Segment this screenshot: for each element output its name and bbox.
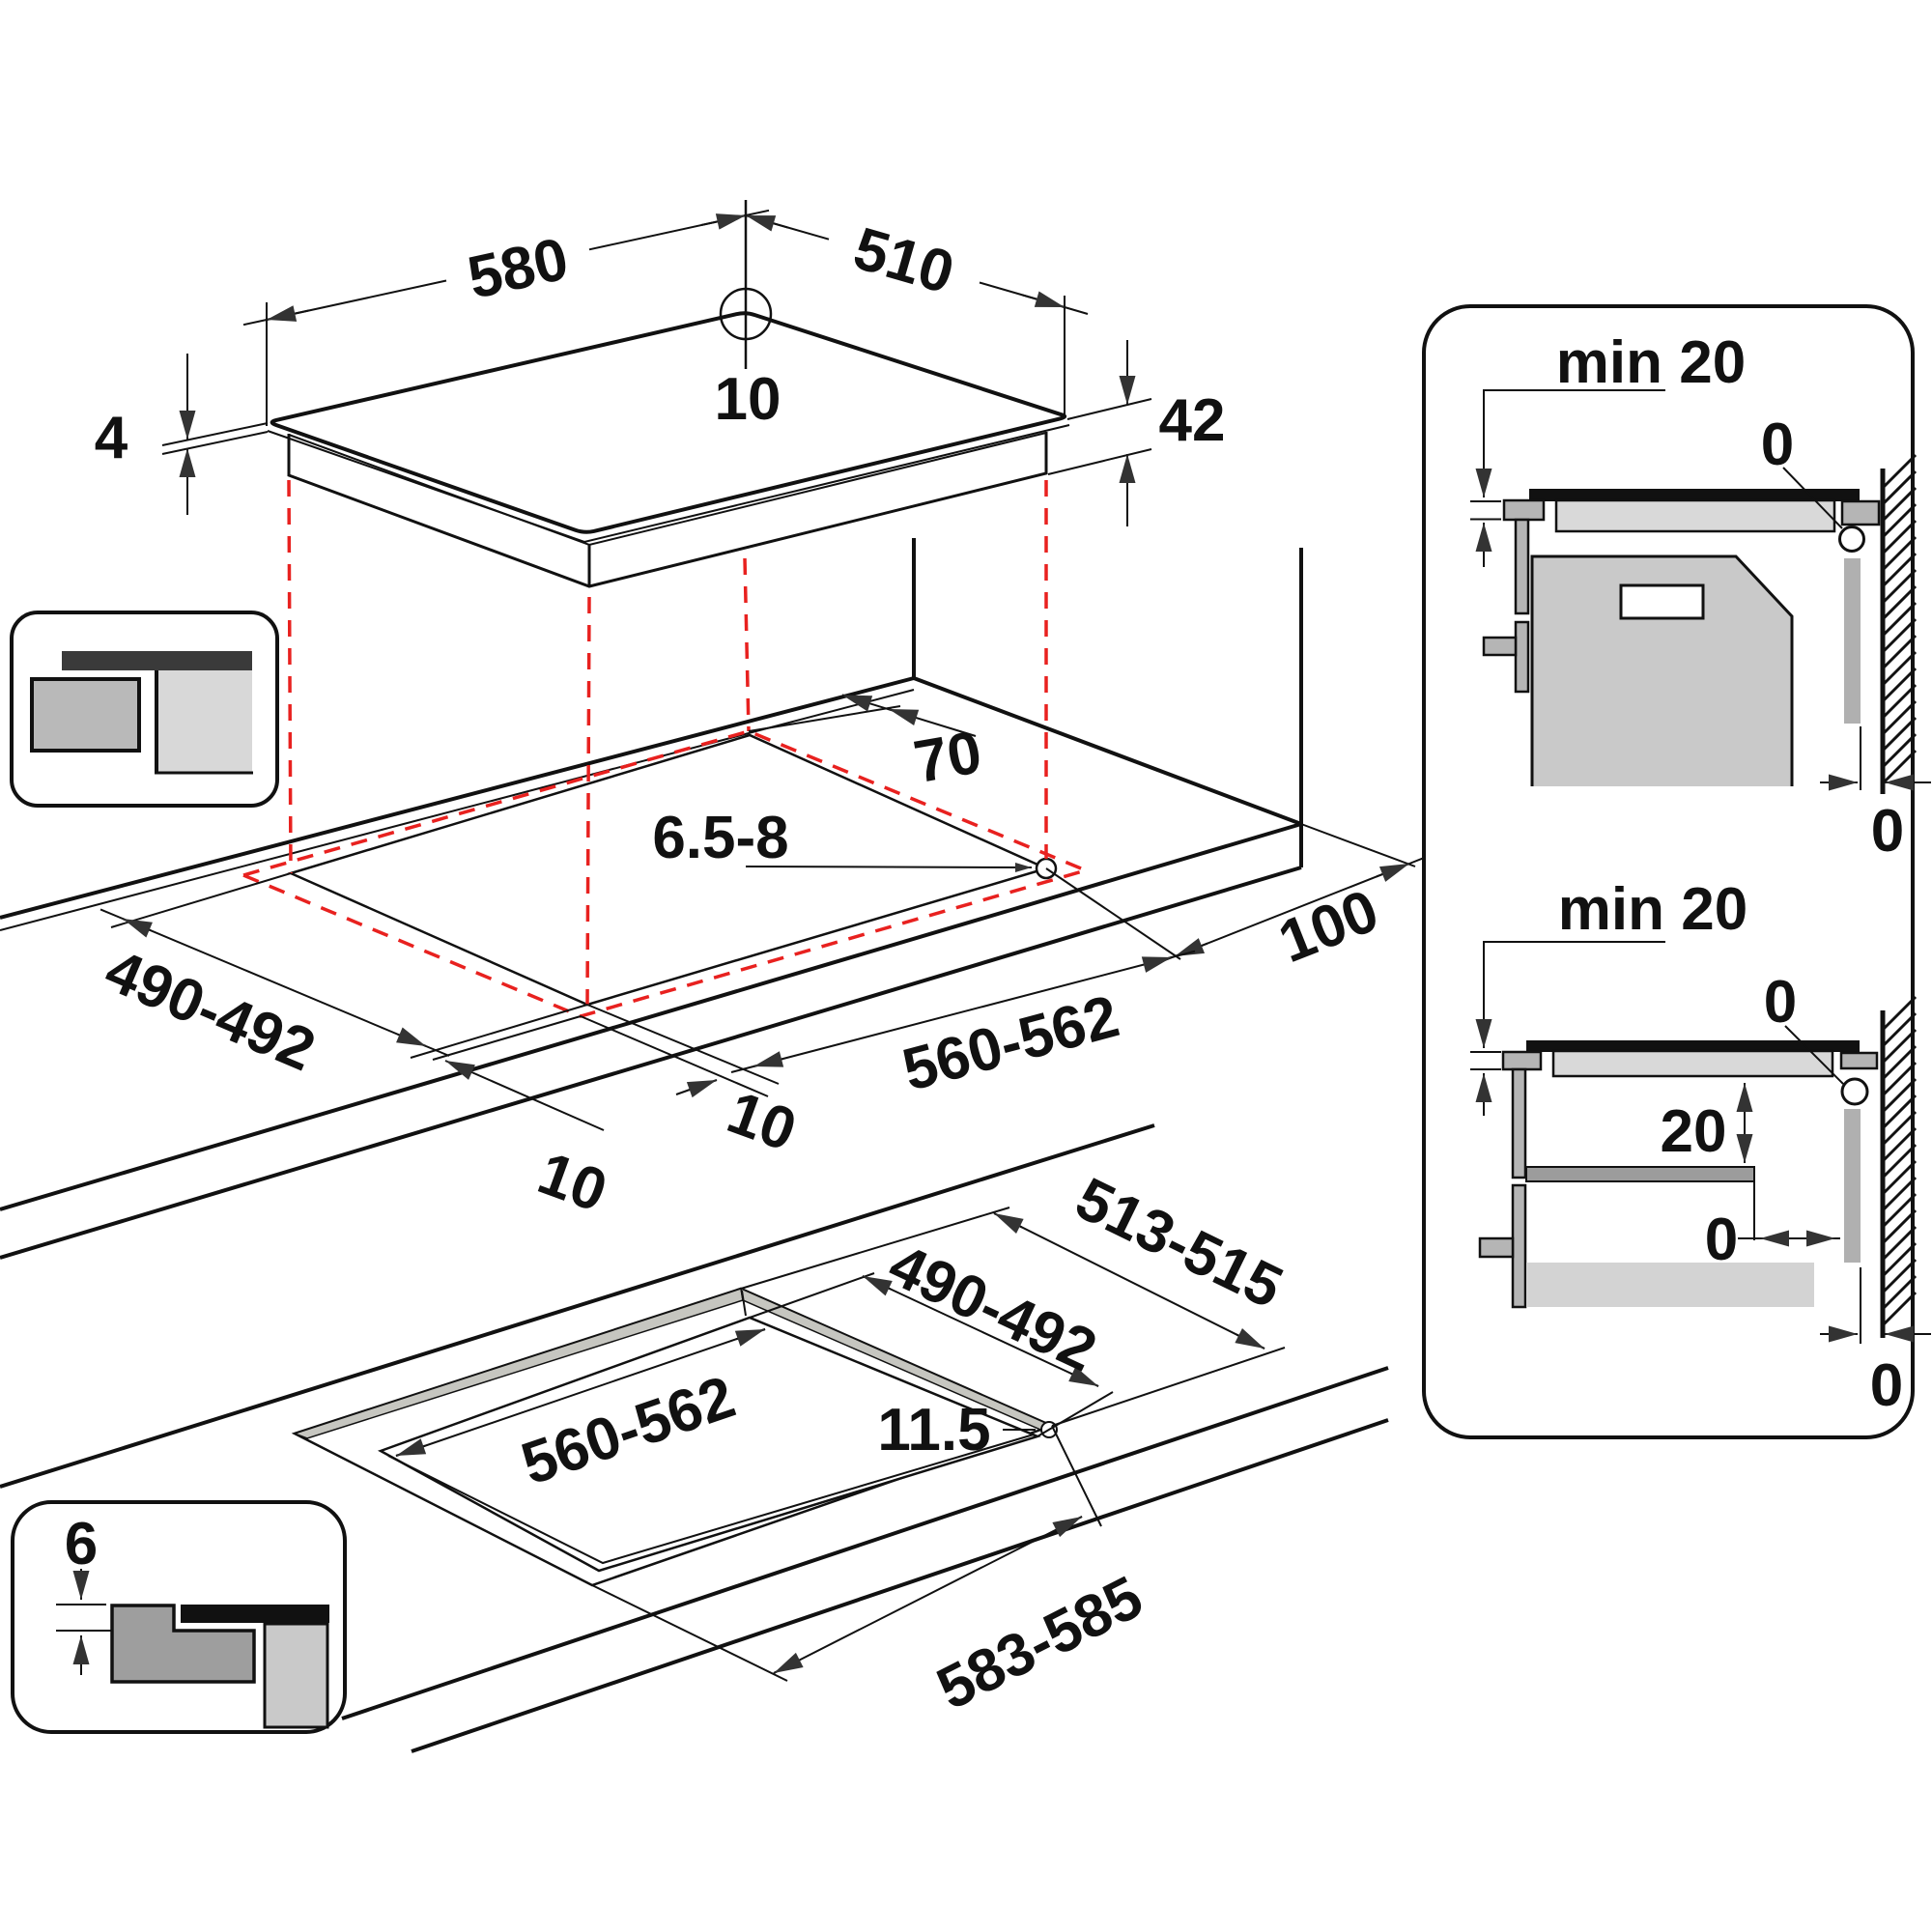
svg-text:0: 0 <box>1870 1352 1903 1419</box>
svg-text:4: 4 <box>95 405 128 471</box>
svg-text:6: 6 <box>65 1511 98 1577</box>
svg-text:42: 42 <box>1159 387 1226 454</box>
svg-text:10: 10 <box>715 366 781 433</box>
svg-text:11.5: 11.5 <box>877 1397 990 1463</box>
svg-text:0: 0 <box>1871 798 1904 865</box>
svg-text:0: 0 <box>1764 969 1797 1036</box>
svg-text:min 20: min 20 <box>1556 329 1746 396</box>
svg-text:0: 0 <box>1761 412 1794 478</box>
svg-text:6.5-8: 6.5-8 <box>652 805 788 871</box>
svg-text:min 20: min 20 <box>1558 876 1747 943</box>
svg-text:20: 20 <box>1661 1098 1727 1165</box>
svg-text:70: 70 <box>909 719 986 796</box>
